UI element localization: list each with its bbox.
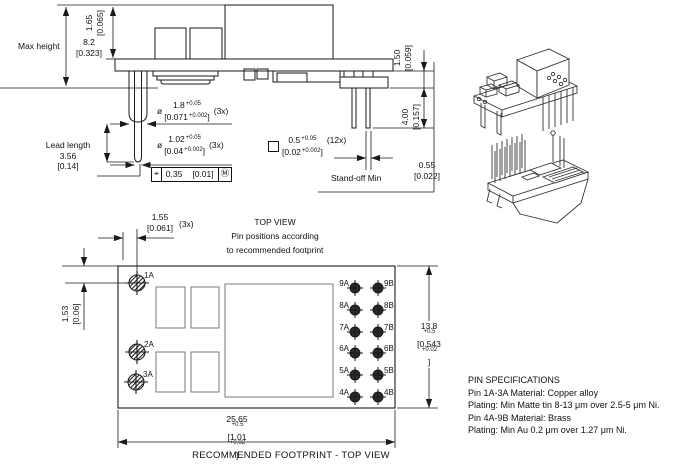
round-pin-lead xyxy=(135,71,142,162)
dim-footprint-width: 13.8+0.5 [0.543+0.02] xyxy=(397,321,461,368)
component-outlines xyxy=(156,284,333,397)
round-pin-sleeve xyxy=(129,71,147,122)
dim-max-height: 8.2 [0.323] xyxy=(72,37,106,58)
standoff-value: 0.55 [0.022] xyxy=(404,160,450,181)
dim-board-right: 1.50 [0.059] xyxy=(392,38,413,78)
dim-pin-offset-y: 1.53 [0.06] xyxy=(60,294,81,334)
pin-label-6B: 6B xyxy=(384,344,394,354)
pin-label-2A: 2A xyxy=(144,340,154,350)
dim-board-thickness: 1.65 [0.065] xyxy=(84,6,105,40)
diameter-symbol: ø xyxy=(157,140,162,151)
diameter-symbol: ø xyxy=(157,106,162,117)
dim-square-pin: 0.5+0.05 [0.02+0.002] (12x) xyxy=(268,135,346,158)
pin-label-7A: 7A xyxy=(337,323,349,333)
pin-label-3A: 3A xyxy=(143,370,153,380)
footprint-drawing xyxy=(118,266,395,408)
pin-label-5A: 5A xyxy=(337,366,349,376)
isometric-view-bottom xyxy=(487,131,588,223)
dim-pin-diameter-small: ø 1.02+0.05 [0.04+0.002] (3x) xyxy=(157,134,224,157)
pin-label-5B: 5B xyxy=(384,366,394,376)
square-symbol xyxy=(268,141,279,152)
top-view-note: TOP VIEW Pin positions according to reco… xyxy=(220,215,330,257)
dim-pin-length: 4.00 [0.157] xyxy=(400,96,421,138)
pin-label-9A: 9A xyxy=(337,279,349,289)
pin-label-7B: 7B xyxy=(384,323,394,333)
pin-label-4A: 4A xyxy=(337,388,349,398)
max-height-label: Max height xyxy=(18,41,60,52)
dim-pin-offset-x-count: (3x) xyxy=(179,219,194,230)
datasheet-mechanical-drawing: Max height 1.65 [0.065] 8.2 [0.323] Lead… xyxy=(0,0,685,465)
signal-pins-right xyxy=(347,280,386,405)
pin-label-4B: 4B xyxy=(384,388,394,398)
lead-length-label: Lead length 3.56 [0.14] xyxy=(38,140,98,172)
dim-pin-diameter-large: ø 1.8+0.05 [0.071+0.002] (3x) xyxy=(157,100,228,123)
top-view-title: TOP VIEW xyxy=(220,215,330,229)
isometric-view-top xyxy=(474,49,577,135)
pin-label-8A: 8A xyxy=(337,301,349,311)
pin-label-8B: 8B xyxy=(384,301,394,311)
footprint-caption: RECOMMENDED FOOTPRINT - TOP VIEW xyxy=(178,450,404,462)
dim-pin-offset-x: 1.55 [0.061] xyxy=(143,212,177,233)
pin-label-1A: 1A xyxy=(144,271,154,281)
standoff-label: Stand-off Min xyxy=(331,173,381,184)
mmc-modifier-symbol: Ⓜ xyxy=(218,167,233,182)
pin-label-6A: 6A xyxy=(337,344,349,354)
pin-label-9B: 9B xyxy=(384,279,394,289)
position-tolerance-frame: ⌖ 0.35 [0.01] Ⓜ xyxy=(152,167,232,182)
pin-specifications-title: PIN SPECIFICATIONS xyxy=(468,374,684,387)
pin-specifications: PIN SPECIFICATIONS Pin 1A-3A Material: C… xyxy=(468,374,684,437)
